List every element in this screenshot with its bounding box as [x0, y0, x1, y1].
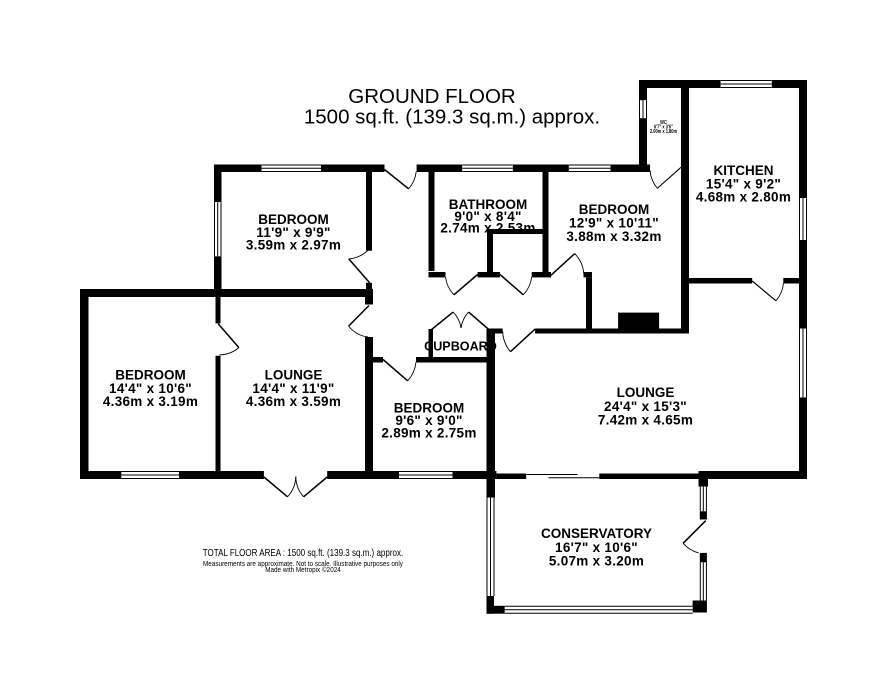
svg-text:3.59m x 2.97m: 3.59m x 2.97m	[246, 238, 341, 253]
svg-text:1500 sq.ft. (139.3 sq.m.) appr: 1500 sq.ft. (139.3 sq.m.) approx.	[304, 106, 600, 129]
svg-text:7.42m x 4.65m: 7.42m x 4.65m	[598, 413, 693, 428]
svg-text:Made with Metropix ©2024: Made with Metropix ©2024	[265, 565, 341, 574]
svg-text:GROUND FLOOR: GROUND FLOOR	[348, 85, 515, 108]
svg-text:4.68m x 2.80m: 4.68m x 2.80m	[696, 190, 791, 205]
svg-text:TOTAL FLOOR AREA : 1500 sq.ft.: TOTAL FLOOR AREA : 1500 sq.ft. (139.3 sq…	[203, 547, 403, 558]
svg-text:2.89m x 2.75m: 2.89m x 2.75m	[381, 426, 476, 441]
svg-text:5.07m x 3.20m: 5.07m x 3.20m	[549, 554, 644, 569]
svg-text:CUPBOARD: CUPBOARD	[424, 340, 497, 354]
svg-text:LOUNGE: LOUNGE	[617, 385, 675, 400]
svg-text:4.36m x 3.19m: 4.36m x 3.19m	[103, 394, 198, 409]
svg-text:4.36m x 3.59m: 4.36m x 3.59m	[246, 394, 341, 409]
svg-text:2.00m x 1.80m: 2.00m x 1.80m	[650, 128, 677, 134]
svg-text:3.88m x 3.32m: 3.88m x 3.32m	[566, 229, 661, 244]
svg-text:CONSERVATORY: CONSERVATORY	[541, 526, 652, 541]
